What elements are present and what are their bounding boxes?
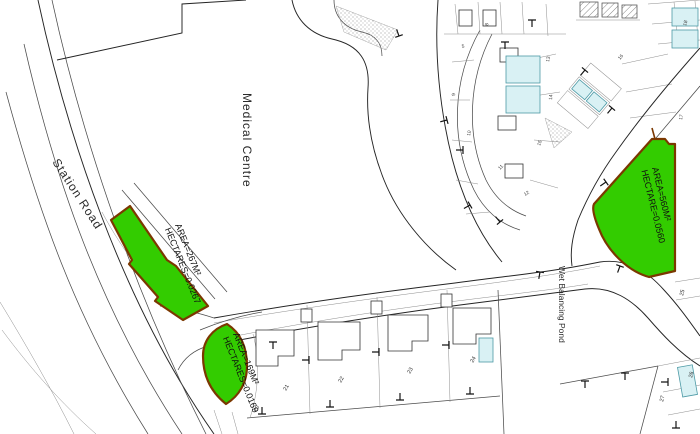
wet-balancing-pond-label: Wet Balancing Pond	[557, 266, 567, 343]
plot-number: 25	[679, 289, 686, 296]
parcel-number: 11	[497, 163, 505, 171]
parcel-number: 5	[461, 44, 465, 50]
tinted-parcel	[678, 365, 698, 397]
parcel-number: 16	[617, 53, 625, 61]
parcel-number: 9	[451, 93, 457, 97]
tinted-parcel	[506, 56, 540, 83]
plot-number: 22	[338, 376, 346, 384]
parcel-number: 10	[466, 130, 473, 137]
station-road-lines	[0, 0, 214, 434]
parcel-number: 17	[678, 114, 685, 121]
plot-number: 23	[407, 367, 415, 375]
tinted-parcel	[479, 338, 493, 362]
parcel-number: 12	[523, 190, 531, 198]
parcel-number: 14	[548, 94, 554, 100]
tinted-parcel	[672, 30, 698, 48]
site-plan-svg: Station Road Medical Centre Wet Balancin…	[0, 0, 700, 434]
tinted-parcel	[506, 86, 540, 113]
parcel-number: 13	[545, 56, 552, 63]
existing-building	[602, 3, 618, 17]
verge-stipple	[545, 118, 572, 148]
green-area-tick	[652, 128, 655, 139]
plot-number: 27	[659, 395, 666, 402]
medical-centre-label: Medical Centre	[240, 93, 254, 188]
plot-number: 21	[283, 384, 291, 392]
diamond-block	[557, 63, 621, 129]
site-plan: Station Road Medical Centre Wet Balancin…	[0, 0, 700, 434]
existing-building	[622, 5, 637, 18]
plot-number: 24	[470, 356, 478, 364]
existing-building	[580, 2, 598, 17]
